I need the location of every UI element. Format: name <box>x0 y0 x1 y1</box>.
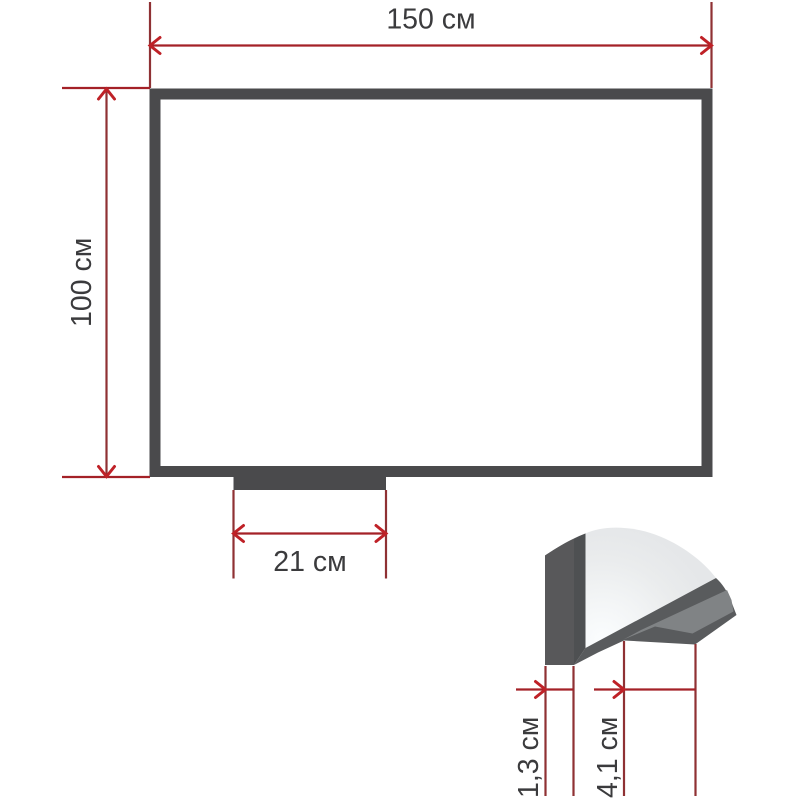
svg-text:150 см: 150 см <box>386 4 475 36</box>
svg-text:4,1 см: 4,1 см <box>592 717 624 798</box>
svg-text:100 см: 100 см <box>66 238 98 327</box>
svg-text:21 см: 21 см <box>273 546 346 578</box>
svg-text:1,3 см: 1,3 см <box>513 717 545 798</box>
